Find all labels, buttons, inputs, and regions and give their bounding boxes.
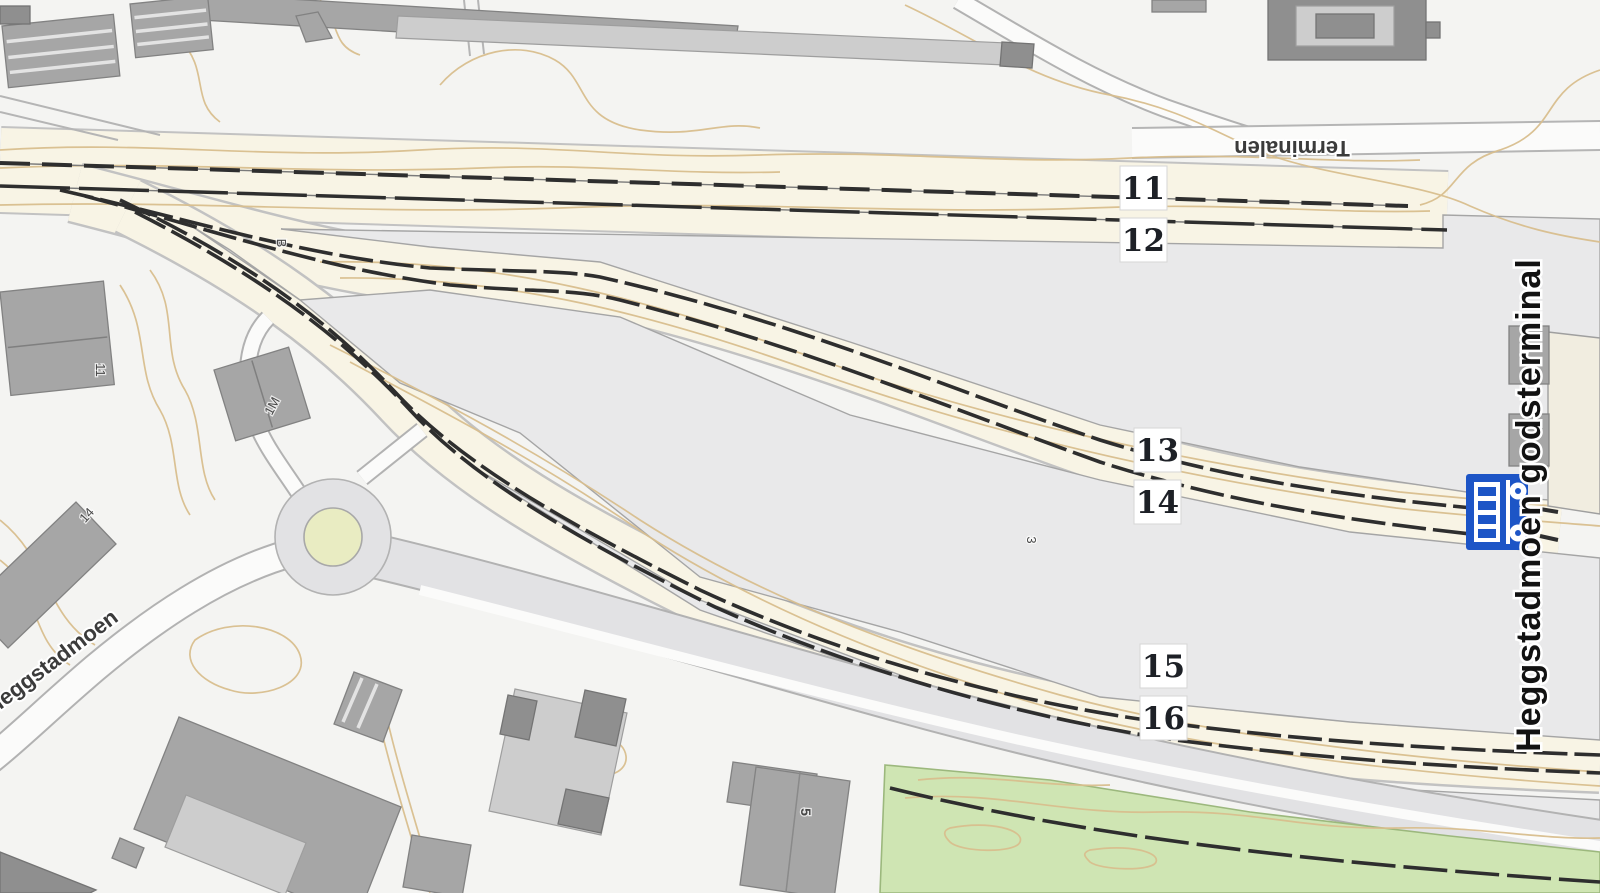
terminalen-street — [1132, 135, 1600, 143]
track-marker-12[interactable]: 12 — [1120, 218, 1167, 262]
track-marker-16[interactable]: 16 — [1140, 696, 1187, 740]
track-marker-11[interactable]: 11 — [1120, 166, 1167, 210]
track-marker-14-label: 14 — [1136, 485, 1179, 521]
building — [575, 690, 626, 746]
site-label-3: 3 — [1024, 536, 1039, 543]
map-canvas[interactable]: Terminalen Heggstadmoen B 3 5 11 1M 14 1… — [0, 0, 1600, 893]
building — [2, 14, 120, 87]
track-marker-12-label: 12 — [1122, 223, 1165, 259]
roundabout-island — [304, 508, 362, 566]
terminal-name-label: Heggstadmoen godsterminal — [1510, 258, 1548, 752]
track-marker-15-label: 15 — [1142, 649, 1185, 685]
building — [1548, 332, 1600, 514]
track-marker-11-label: 11 — [1122, 171, 1165, 207]
map-viewport[interactable]: Terminalen Heggstadmoen B 3 5 11 1M 14 1… — [0, 0, 1600, 893]
track-marker-16-label: 16 — [1142, 701, 1185, 737]
track-marker-14[interactable]: 14 — [1134, 480, 1181, 524]
site-label-b: B — [274, 239, 289, 248]
building — [0, 281, 114, 395]
site-label-11: 11 — [93, 363, 108, 377]
terminalen-street-label: Terminalen — [1234, 136, 1350, 161]
building — [130, 0, 213, 58]
track-marker-13-label: 13 — [1136, 433, 1179, 469]
building — [1000, 42, 1034, 68]
building — [1152, 0, 1206, 12]
building — [1268, 0, 1440, 60]
site-label-5: 5 — [798, 808, 814, 816]
building — [403, 835, 471, 893]
building — [0, 6, 30, 24]
track-marker-15[interactable]: 15 — [1140, 644, 1187, 688]
track-marker-13[interactable]: 13 — [1134, 428, 1181, 472]
